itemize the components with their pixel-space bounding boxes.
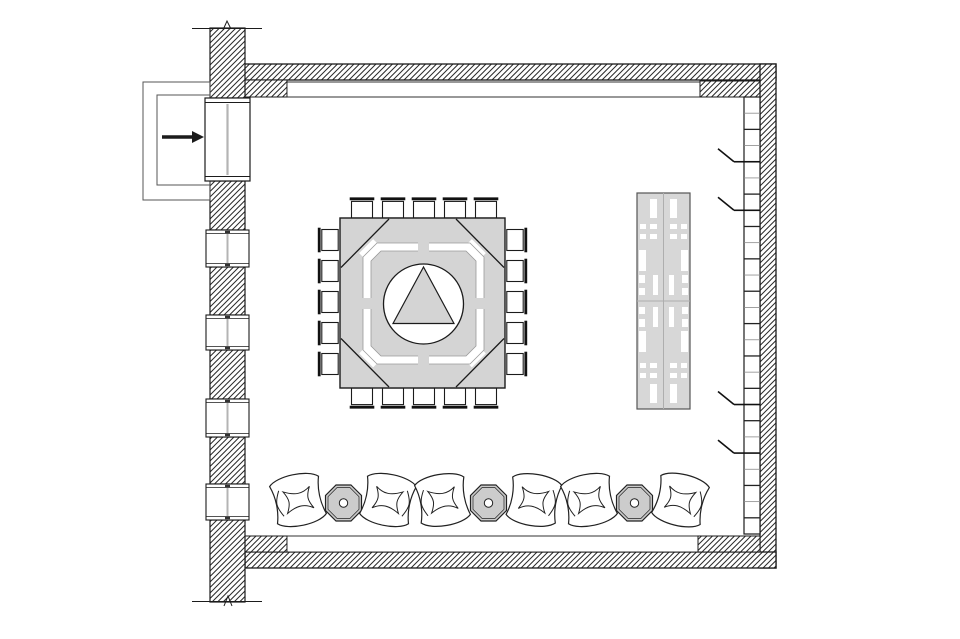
- opening-tick: [718, 440, 734, 453]
- chair-seat: [352, 201, 373, 217]
- wall-segment: [210, 267, 245, 315]
- buffet-slot: [650, 199, 657, 218]
- lounge-armchair: [358, 470, 418, 531]
- chair-seat: [414, 388, 435, 404]
- wall-segment: [210, 181, 245, 230]
- chair-seat: [507, 230, 523, 251]
- right-wall: [760, 64, 776, 568]
- bottom-right-pier: [698, 536, 760, 552]
- buffet-slot: [639, 307, 645, 314]
- bottom-left-pier: [245, 536, 287, 552]
- conference-chair: [319, 290, 338, 315]
- chair-seat: [322, 292, 338, 313]
- buffet-slot: [640, 373, 646, 378]
- conference-chair: [443, 388, 468, 407]
- conference-chair: [350, 388, 375, 407]
- chair-seat: [445, 201, 466, 217]
- chair-seat: [445, 388, 466, 404]
- floor-plan-drawing: [0, 0, 960, 639]
- wall-segment: [210, 437, 245, 484]
- bottom-wall: [245, 552, 776, 568]
- conference-chair: [319, 228, 338, 253]
- buffet-slot: [640, 363, 646, 368]
- chair-seat: [507, 261, 523, 282]
- buffet-slot: [650, 384, 657, 403]
- chair-seat: [507, 292, 523, 313]
- lounge-side-table: [617, 485, 653, 521]
- chair-seat: [322, 323, 338, 344]
- window: [206, 230, 249, 267]
- buffet-slot: [653, 275, 658, 295]
- buffet-slot: [682, 319, 688, 327]
- conference-chair: [319, 352, 338, 377]
- window: [206, 315, 249, 350]
- lounge-armchair: [505, 470, 563, 529]
- conference-chair: [474, 388, 499, 407]
- arrow-head: [192, 131, 204, 143]
- floor-plan: [0, 0, 960, 639]
- chair-seat: [507, 354, 523, 375]
- entrance-door: [205, 98, 250, 181]
- top-right-pier: [700, 81, 760, 97]
- opening-tick: [718, 149, 734, 162]
- table-center-detail: [339, 499, 347, 507]
- armchair-outline: [413, 470, 471, 529]
- opening-tick: [718, 392, 734, 405]
- buffet-slot: [681, 331, 688, 352]
- conference-chair: [412, 199, 437, 218]
- conference-chair: [381, 199, 406, 218]
- wall-segment: [210, 350, 245, 399]
- window: [206, 399, 249, 437]
- table-center-detail: [484, 499, 492, 507]
- buffet-slot: [650, 373, 657, 378]
- chair-seat: [322, 230, 338, 251]
- bottom-ledge: [287, 536, 698, 552]
- chair-seat: [414, 201, 435, 217]
- right-wall-panel-strip: [718, 97, 760, 534]
- top-wall: [244, 64, 776, 80]
- buffet-slot: [640, 234, 646, 239]
- buffet-slot: [670, 363, 677, 368]
- buffet-slot: [653, 307, 658, 327]
- chair-seat: [476, 388, 497, 404]
- buffet-slot: [682, 288, 688, 295]
- lounge-armchair: [268, 470, 328, 531]
- buffet-slot: [681, 224, 687, 229]
- vestibule-inner-outline: [157, 95, 210, 185]
- conference-chair: [412, 388, 437, 407]
- conference-chair: [507, 352, 526, 377]
- buffet-slot: [639, 319, 645, 327]
- buffet-slot: [650, 234, 657, 239]
- buffet-slot: [669, 275, 674, 295]
- buffet-slot: [650, 224, 657, 229]
- chair-seat: [322, 261, 338, 282]
- conference-chair: [507, 321, 526, 346]
- conference-chair: [350, 199, 375, 218]
- buffet-slot: [669, 307, 674, 327]
- lounge-armchair: [559, 470, 619, 531]
- wall-segment: [210, 520, 245, 602]
- table-center-detail: [630, 499, 638, 507]
- entry-arrow-icon: [162, 131, 204, 143]
- lounge-armchair: [413, 470, 471, 529]
- panel-strip-outline: [744, 97, 760, 534]
- buffet-slot: [639, 250, 646, 271]
- buffet-slot: [681, 250, 688, 271]
- top-left-pier: [245, 80, 287, 97]
- buffet-slot: [639, 331, 646, 352]
- buffet-slot: [681, 234, 687, 239]
- chair-seat: [476, 201, 497, 217]
- chair-seat: [352, 388, 373, 404]
- buffet-slot: [682, 275, 688, 283]
- buffet-slot: [650, 363, 657, 368]
- wall-segment: [210, 28, 245, 98]
- buffet-slot: [639, 275, 645, 283]
- conference-chair: [507, 228, 526, 253]
- chair-seat: [507, 323, 523, 344]
- top-ledge: [287, 82, 700, 97]
- buffet-slot: [670, 199, 677, 218]
- chair-seat: [383, 201, 404, 217]
- buffet-slot: [682, 307, 688, 314]
- lounge-side-table: [471, 485, 507, 521]
- chair-seat: [322, 354, 338, 375]
- buffet-slot: [670, 373, 677, 378]
- window: [206, 484, 249, 520]
- conference-table-group: [319, 199, 526, 407]
- opening-tick: [718, 197, 734, 210]
- buffet-slot: [639, 288, 645, 295]
- buffet-slot: [681, 363, 687, 368]
- buffet-table: [637, 193, 690, 409]
- conference-chair: [507, 259, 526, 284]
- lounge-armchair: [650, 469, 711, 531]
- buffet-slot: [670, 234, 677, 239]
- buffet-slot: [681, 373, 687, 378]
- conference-chair: [319, 259, 338, 284]
- conference-chair: [443, 199, 468, 218]
- lounge-seating-row: [268, 469, 711, 531]
- armchair-outline: [505, 470, 563, 529]
- conference-chair: [319, 321, 338, 346]
- buffet-slot: [640, 224, 646, 229]
- lounge-side-table: [326, 485, 362, 521]
- conference-chair: [381, 388, 406, 407]
- conference-chair: [474, 199, 499, 218]
- chair-seat: [383, 388, 404, 404]
- buffet-slot: [670, 224, 677, 229]
- conference-chair: [507, 290, 526, 315]
- vestibule-outer-outline: [143, 82, 210, 200]
- buffet-slot: [670, 384, 677, 403]
